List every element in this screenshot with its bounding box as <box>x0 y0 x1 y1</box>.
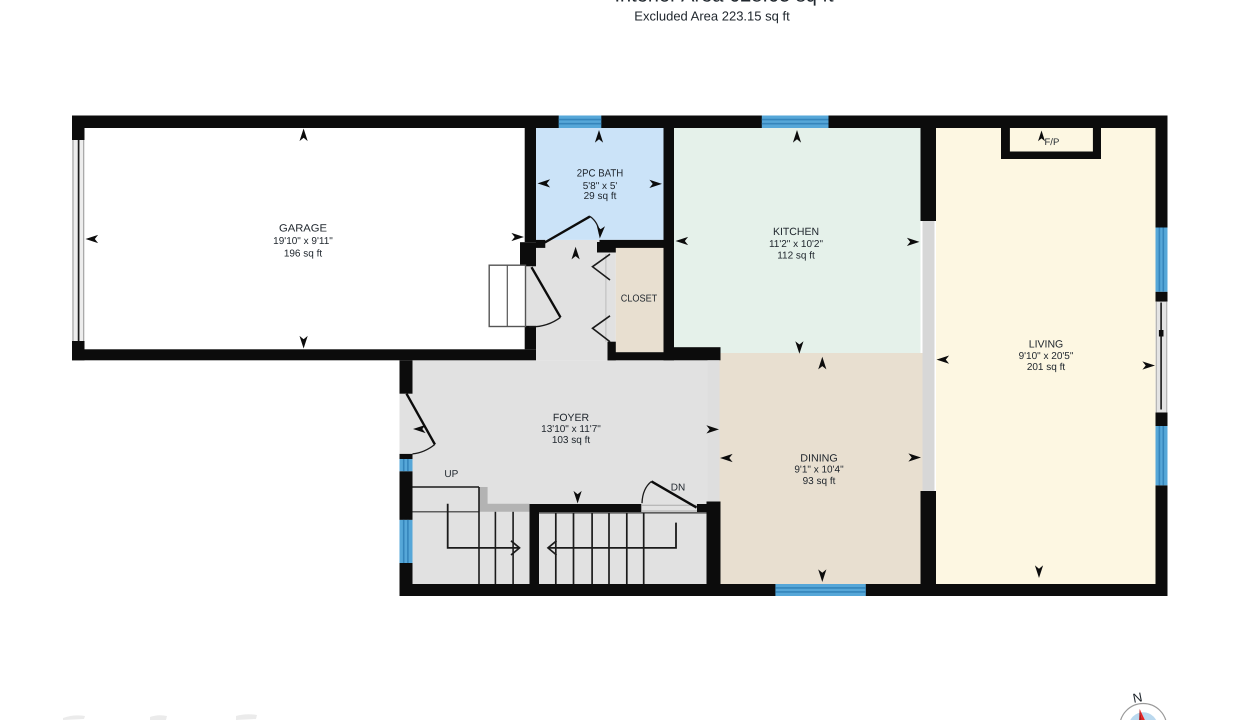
svg-text:F/P: F/P <box>1045 137 1060 148</box>
svg-text:19'10" x 9'11": 19'10" x 9'11" <box>273 236 333 247</box>
svg-text:GARAGE: GARAGE <box>279 223 327 235</box>
svg-text:93 sq ft: 93 sq ft <box>803 476 836 487</box>
svg-text:11'2" x 10'2": 11'2" x 10'2" <box>769 239 824 250</box>
svg-text:196 sq ft: 196 sq ft <box>284 249 323 260</box>
svg-text:29 sq ft: 29 sq ft <box>584 191 617 202</box>
svg-text:201 sq ft: 201 sq ft <box>1027 362 1066 373</box>
svg-text:Excluded Area 223.15 sq ft: Excluded Area 223.15 sq ft <box>634 9 790 24</box>
svg-text:Interior Area 628.63 sq ft: Interior Area 628.63 sq ft <box>614 0 833 7</box>
svg-text:2PC BATH: 2PC BATH <box>577 168 624 180</box>
svg-text:13'10" x 11'7": 13'10" x 11'7" <box>541 424 601 435</box>
svg-text:9'1" x 10'4": 9'1" x 10'4" <box>794 465 844 476</box>
svg-text:UP: UP <box>444 469 458 480</box>
svg-text:112 sq ft: 112 sq ft <box>777 251 815 262</box>
svg-text:103 sq ft: 103 sq ft <box>552 435 591 446</box>
svg-text:KITCHEN: KITCHEN <box>773 226 819 238</box>
svg-text:FOYER: FOYER <box>553 412 590 424</box>
svg-text:DN: DN <box>671 483 685 494</box>
svg-text:CLOSET: CLOSET <box>621 294 658 305</box>
svg-text:9'10" x 20'5": 9'10" x 20'5" <box>1019 351 1074 362</box>
svg-text:DINING: DINING <box>800 453 838 465</box>
svg-text:LIVING: LIVING <box>1029 339 1064 351</box>
